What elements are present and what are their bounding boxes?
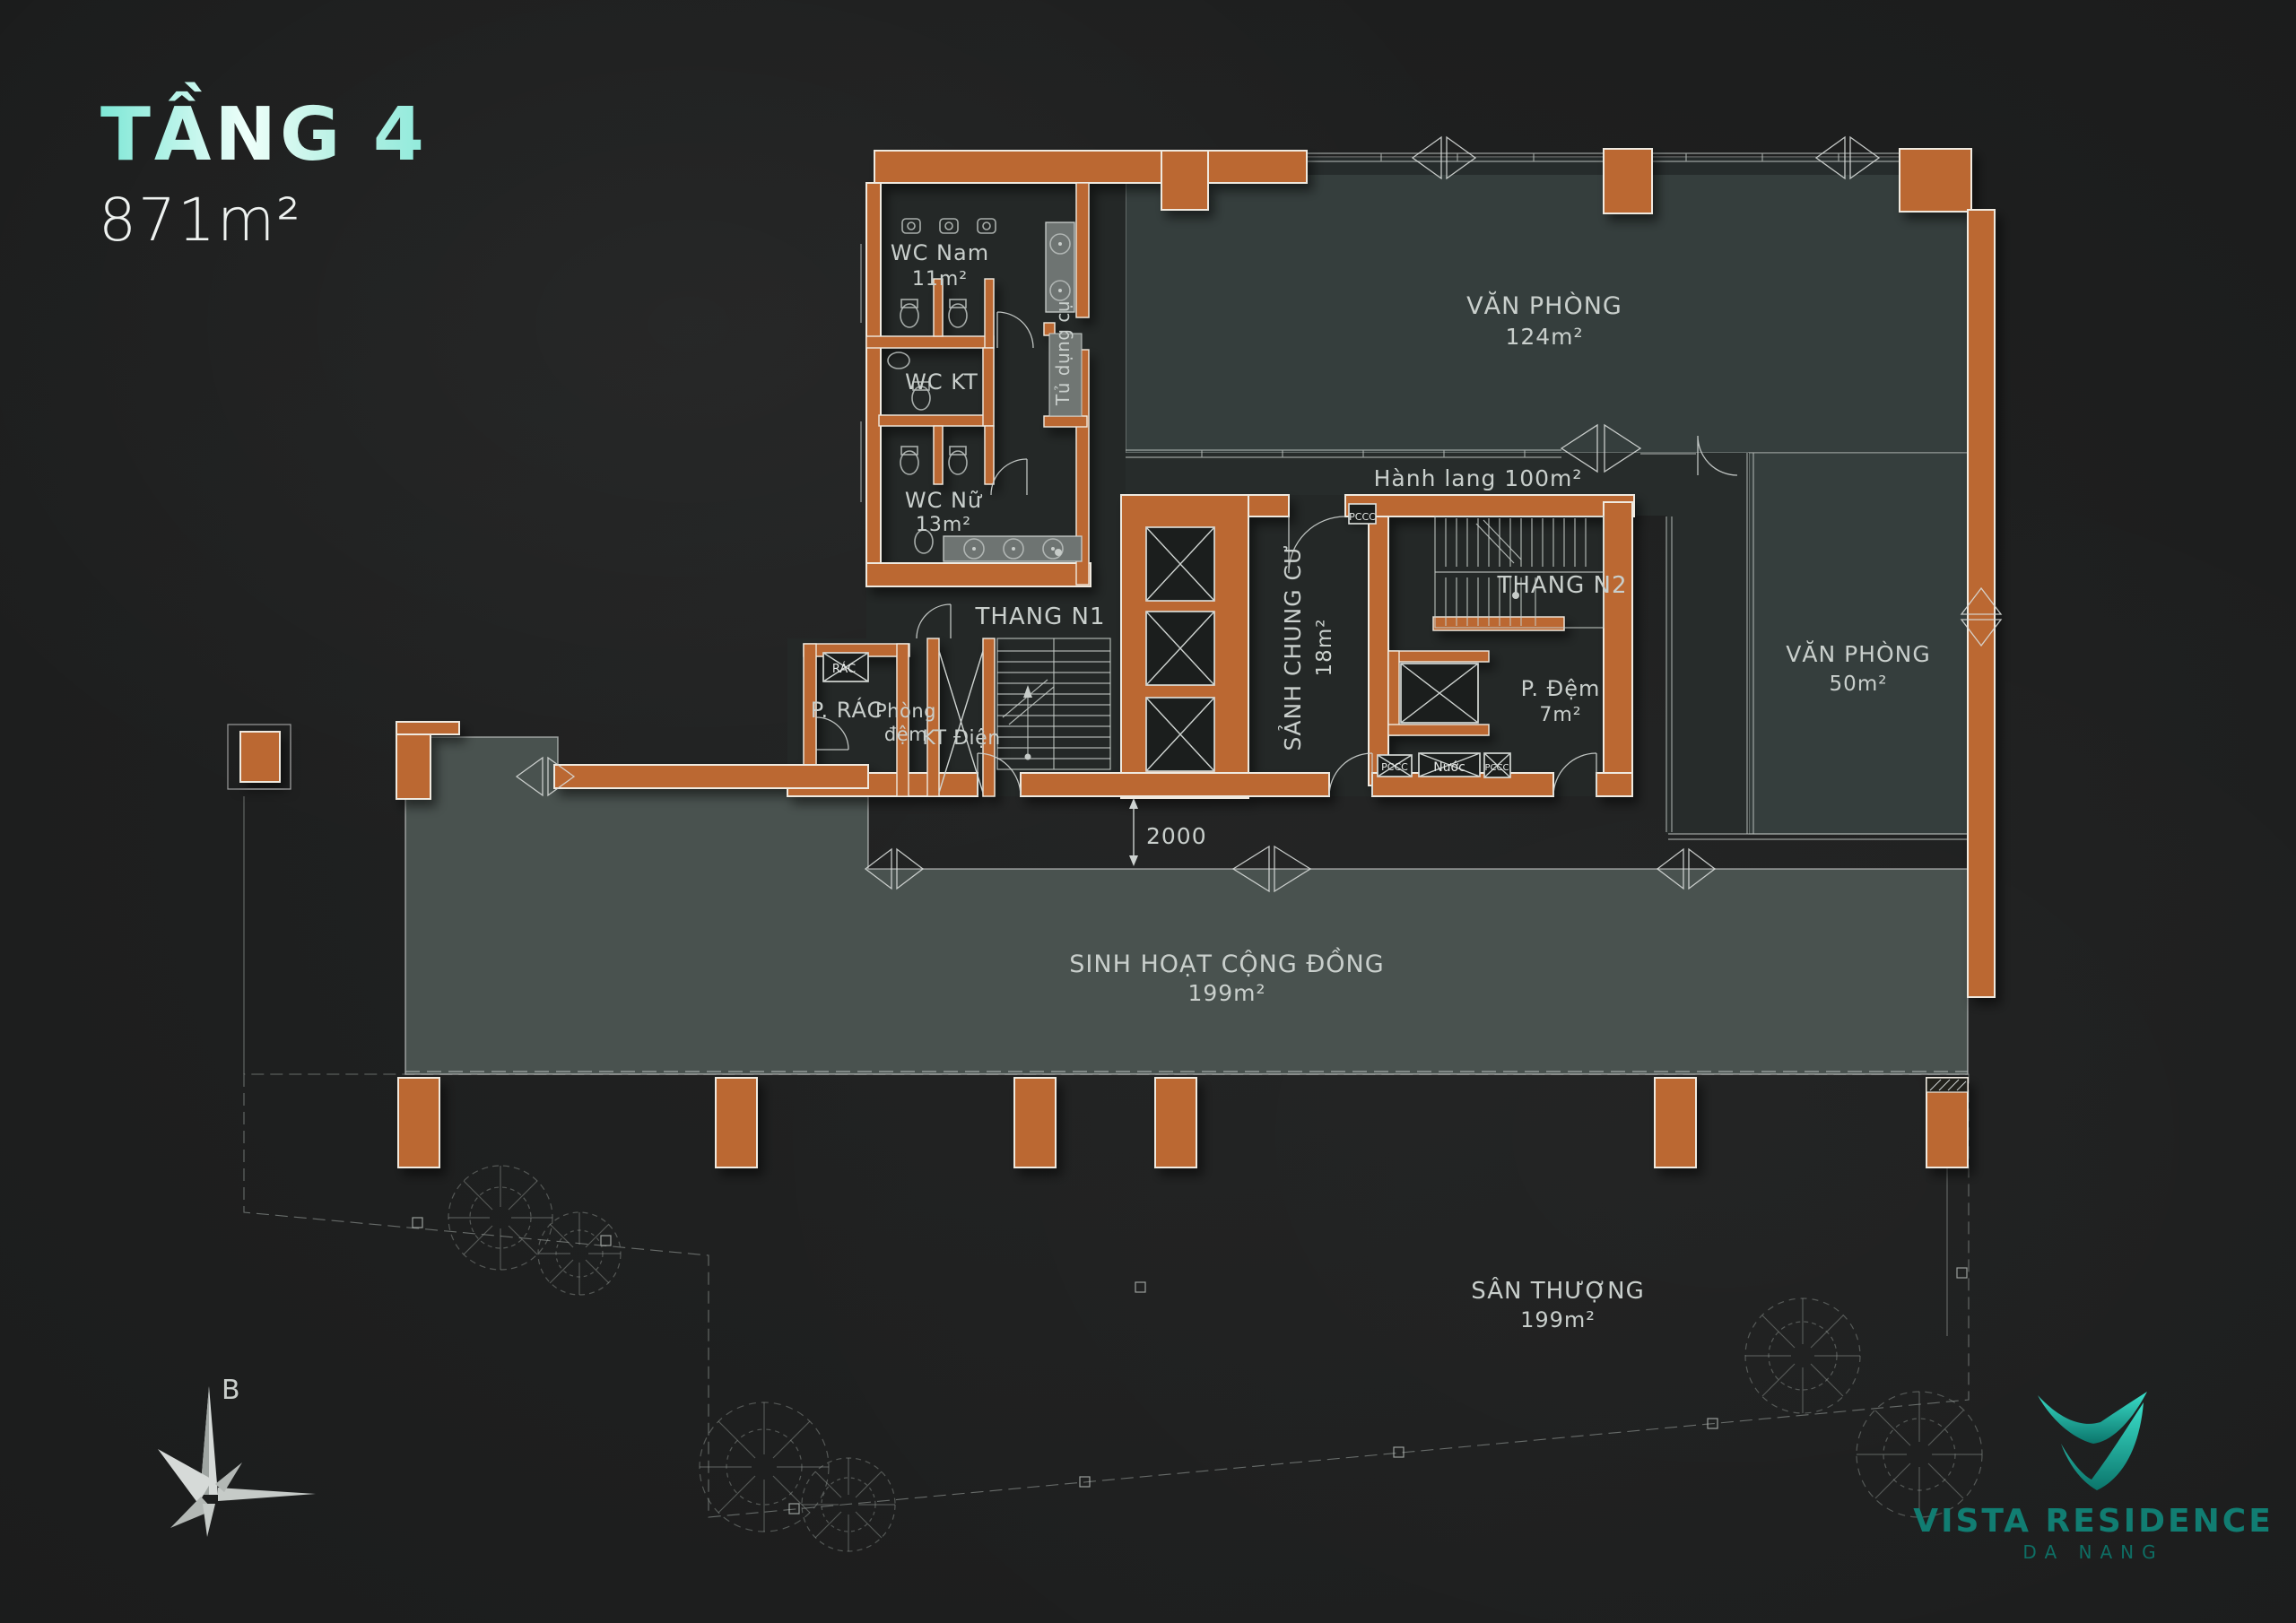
label-sanh-chung-cu: SẢNH CHUNG CƯ [1278,544,1306,751]
brand-name: VISTA RESIDENCE [1913,1503,2274,1540]
label-nuoc: Nước [1433,760,1465,775]
tree-icon [1857,1392,1982,1517]
pillars [398,1078,1968,1167]
floor-area-value: 871m² [99,186,302,255]
label-sanh-chung-cu-area: 18m² [1313,619,1336,677]
railing-post-markers [413,1218,1967,1514]
page-title: TẦNG 4 [100,82,428,178]
label-p-dem: P. Đệm [1521,676,1601,701]
label-van-phong-50-area: 50m² [1830,673,1888,696]
label-wc-kt: WC KT [905,369,978,395]
tree-icon [700,1402,829,1532]
brand-location: DA NANG [2022,1541,2163,1563]
dimension-2000: 2000 [1129,798,1207,866]
hatch-pillar-top [1926,1078,1968,1092]
label-van-phong-124: VĂN PHÒNG [1466,291,1622,320]
label-wc-nam: WC Nam [891,240,989,265]
tree-icon [1745,1298,1860,1413]
label-sinh-hoat-area: 199m² [1187,980,1265,1006]
floor-plan-canvas: 2000 WC Nam 11m² WC KT WC Nữ 13m² Tủ dụn… [0,0,2296,1623]
trees [448,1166,1982,1551]
label-pccc-top: PCCC [1349,511,1376,523]
label-san-thuong: SÂN THƯỢNG [1471,1276,1645,1305]
label-wc-nu-area: 13m² [916,514,971,536]
label-phong-dem-1: Phòng [875,700,936,722]
column-point [1055,549,1062,556]
label-rac-chute: RÁC [832,662,856,676]
terrace-area [244,1074,1969,1517]
label-p-rac: P. RÁC [811,697,883,723]
label-pccc-left: PCCC [1381,761,1408,773]
label-pccc-right: PCCC [1485,763,1509,773]
vista-logo: VISTA RESIDENCE DA NANG [1913,1392,2274,1563]
label-phong-dem-2: đệm [884,724,927,745]
label-van-phong-50: VĂN PHÒNG [1786,640,1930,667]
label-tu-dung-cu: Tủ dụng cụ [1052,300,1074,406]
label-thang-n1: THANG N1 [974,603,1105,630]
floor-areas [244,157,1969,1517]
label-van-phong-124-area: 124m² [1505,324,1583,350]
label-wc-nam-area: 11m² [912,268,968,291]
compass-north-label: B [222,1375,240,1406]
hallway-vertical-area [1666,516,1749,834]
compass-icon: B [158,1375,316,1537]
label-hanh-lang: Hành lang 100m² [1374,465,1583,491]
label-wc-nu: WC Nữ [905,488,983,513]
dimension-label: 2000 [1146,823,1207,849]
vista-logo-icon [2038,1392,2147,1490]
tree-icon [448,1166,552,1270]
label-thang-n2: THANG N2 [1496,572,1627,599]
tree-icon [538,1212,621,1295]
label-sinh-hoat: SINH HOẠT CỘNG ĐỒNG [1069,947,1384,978]
label-san-thuong-area: 199m² [1520,1307,1596,1332]
label-kt-dien: KT Điện [922,727,1000,750]
page-title-block: TẦNG 4 871m² [99,82,428,255]
label-p-dem-area: 7m² [1539,704,1581,726]
